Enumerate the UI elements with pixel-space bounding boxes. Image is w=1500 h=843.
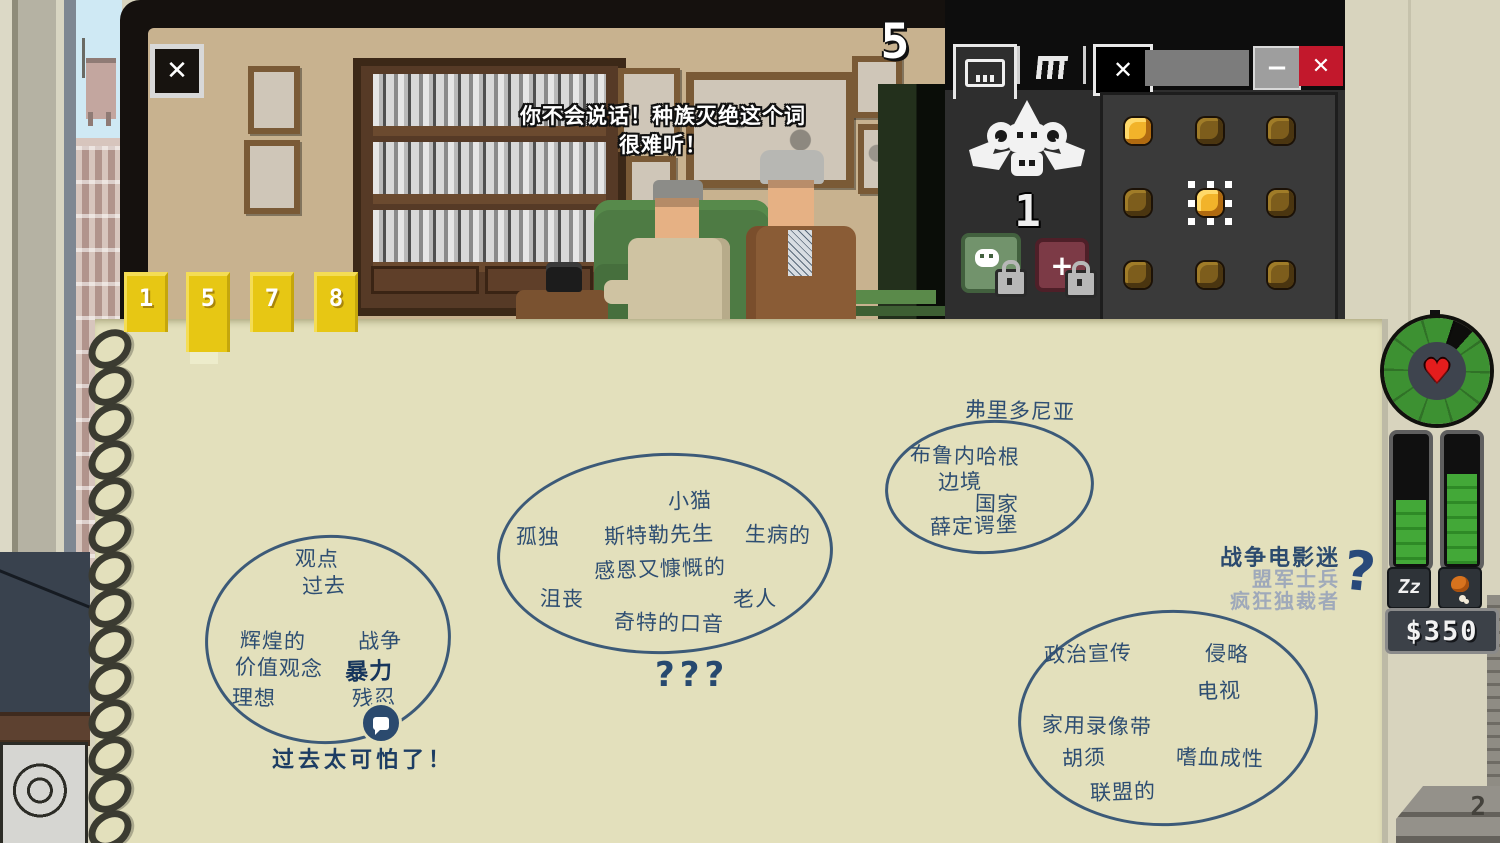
close-button[interactable]: ✕ — [1299, 46, 1343, 86]
man2-shirt — [788, 230, 812, 276]
clue-word[interactable]: 沮丧 — [540, 582, 585, 613]
clue-word[interactable]: 侵略 — [1205, 637, 1250, 668]
bookmark-tab-1[interactable]: 1 — [124, 272, 168, 332]
crumpled-paper — [0, 742, 88, 843]
x-tab-icon: ✕ — [1113, 56, 1133, 84]
cage-slot[interactable] — [1125, 262, 1151, 288]
clue-word[interactable]: 小猫 — [667, 484, 712, 516]
cage-slot[interactable] — [1268, 262, 1294, 288]
padlock-icon — [995, 269, 1027, 297]
clue-word[interactable]: 价值观念 — [235, 651, 324, 683]
clue-word[interactable]: 感恩又慷慨的 — [594, 551, 727, 586]
monkey-count: 1 — [965, 186, 1090, 237]
locked-red-item-button[interactable]: + — [1035, 238, 1089, 292]
bookmark-tab-5[interactable]: 5 — [186, 272, 230, 352]
surveillance-feed-window: 你不会说话！种族灭绝这个词 很难听！ 5 ✕ — [120, 0, 950, 332]
clue-word[interactable]: 电视 — [1196, 674, 1241, 706]
tab-tally[interactable] — [1027, 44, 1077, 90]
cabinet-door — [371, 266, 479, 294]
tally-icon — [1036, 56, 1068, 79]
clue-word[interactable]: 孤独 — [516, 520, 561, 551]
bookmark-label: 7 — [265, 284, 279, 312]
clue-word[interactable]: 生病的 — [745, 518, 812, 550]
monkey-cage-window: ✕ − ✕ 1 + — [945, 0, 1345, 332]
man1-face — [655, 198, 699, 240]
unknown-name-caption: ??? — [655, 655, 729, 695]
monkey-face-glyph — [975, 249, 999, 267]
cassette-icon — [965, 59, 1005, 87]
minimize-button[interactable]: − — [1253, 46, 1301, 90]
bookshelf — [353, 58, 626, 316]
cage-slot[interactable] — [1125, 190, 1151, 216]
man2-face — [768, 180, 814, 230]
clue-word[interactable]: 过去 — [301, 569, 346, 601]
wood-shelf — [0, 712, 90, 746]
bookmark-label: 8 — [329, 284, 343, 312]
locked-green-item-button[interactable] — [961, 233, 1021, 293]
bookmark-label: 5 — [201, 284, 215, 312]
cage-slot[interactable] — [1268, 118, 1294, 144]
dialogue-text: 你不会说话！种族灭绝这个词 很难听！ — [448, 102, 878, 161]
clue-word[interactable]: 家用录像带 — [1042, 709, 1153, 742]
feed-counter: 5 — [860, 14, 930, 70]
bookmark-tab-8[interactable]: 8 — [314, 272, 358, 332]
bookmark-label: 1 — [139, 284, 153, 312]
cage-slot[interactable] — [1268, 190, 1294, 216]
padlock-icon — [1065, 270, 1097, 298]
wall-seam — [1408, 0, 1411, 330]
water-tower — [86, 58, 116, 119]
conclusion-caption: 过去太可怕了！ — [272, 742, 454, 774]
cage-slot[interactable] — [1197, 262, 1223, 288]
tab-close-feeds[interactable]: ✕ — [1093, 44, 1153, 96]
window-title-strip — [1145, 50, 1249, 86]
clue-word[interactable]: 奇特的口音 — [614, 606, 725, 639]
clue-word[interactable]: 嗜血成性 — [1176, 741, 1265, 773]
clue-word[interactable]: 斯特勒先生 — [604, 517, 715, 551]
game-screen: 你不会说话！种族灭绝这个词 很难听！ 5 ✕ 1 5 7 8 ✕ − ✕ — [0, 0, 1500, 843]
question-mark: ? — [1341, 539, 1379, 605]
monkey-icon — [967, 98, 1087, 186]
clue-word[interactable]: 联盟的 — [1089, 775, 1156, 807]
clue-word[interactable]: 薛定谔堡 — [930, 508, 1019, 541]
cage-slot-selected[interactable] — [1197, 190, 1223, 216]
cage-grid — [1100, 92, 1338, 324]
tab-separator — [1017, 46, 1020, 84]
clue-word[interactable]: 理想 — [232, 681, 277, 712]
man1-arm — [604, 280, 662, 304]
man1-cap — [653, 180, 703, 200]
feed-close-button[interactable]: ✕ — [150, 44, 204, 98]
cage-slot[interactable] — [1125, 118, 1151, 144]
clue-word[interactable]: 政治宣传 — [1044, 636, 1133, 669]
picture-frame — [244, 140, 300, 214]
quote-stamp-icon — [360, 702, 402, 744]
profile-guess-2: 疯狂独裁者 — [1140, 585, 1340, 614]
dialogue-line1: 你不会说话！种族灭绝这个词 — [520, 104, 806, 128]
dialogue-line2: 很难听！ — [619, 133, 707, 157]
tower-legs — [88, 112, 93, 126]
tab-separator — [1083, 46, 1086, 84]
clue-word[interactable]: 胡须 — [1061, 741, 1106, 773]
antenna — [82, 38, 85, 78]
clue-word[interactable]: 老人 — [732, 582, 777, 614]
bookmark-tab-7[interactable]: 7 — [250, 272, 294, 332]
tab-cassette[interactable] — [953, 44, 1017, 99]
telephone — [546, 262, 582, 292]
radiator-strip — [1487, 595, 1500, 843]
cage-slot[interactable] — [1197, 118, 1223, 144]
picture-frame — [248, 66, 300, 134]
